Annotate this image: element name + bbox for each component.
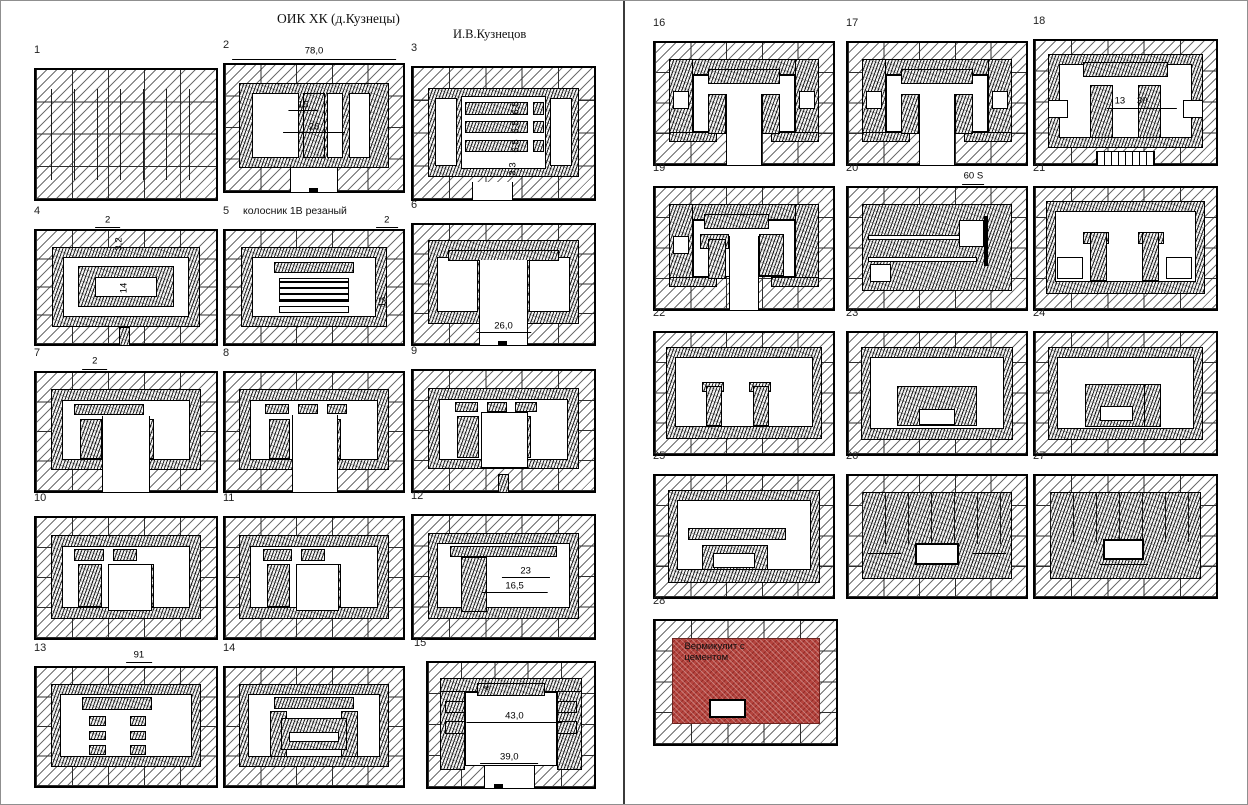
cavity-region [799,91,815,109]
dimension-label: 91 [134,650,145,661]
firebrick-hatch-region [89,731,106,741]
brick-joints [1050,492,1202,542]
dimension-line [502,577,550,578]
cavity-region [1166,257,1192,278]
firebrick-hatch-region [263,549,292,560]
firebrick-hatch-region [1090,85,1112,138]
diagram-18: 181330 [1033,15,1218,166]
firebrick-hatch-region [955,94,973,134]
course-drawing [653,474,835,599]
course-number: 25 [653,450,665,462]
cavity-region [915,543,959,566]
marker-block [973,553,1006,554]
marker-block [868,553,901,554]
dimension-label: 39,0 [500,752,519,763]
cavity-region [252,93,299,158]
cavity-region [919,409,955,425]
course-number: 13 [34,642,46,654]
marker-block [494,784,503,789]
firebrick-hatch-region [274,262,354,274]
course-number: 1 [34,44,40,56]
firebrick-hatch-region [515,402,537,412]
course-drawing: 91 [34,666,218,788]
diagram-15: 15443,039,0 [426,637,596,789]
firebrick-hatch-region [457,416,479,458]
cavity-region [868,257,977,262]
cavity-region [709,699,746,718]
diagram-9: 9 [411,345,596,493]
dimension-label: 43,0 [505,711,524,722]
cavity-region [349,93,371,158]
firebrick-hatch-region [298,404,318,414]
diagram-24: 24 [1033,307,1218,456]
dimension-line [82,369,108,370]
course-number: 5 [223,205,229,217]
dimension-label: 14 [119,282,130,293]
course-drawing: 2316,5 [411,514,596,640]
firebrick-hatch-region [533,102,544,114]
firebrick-hatch-region [762,94,780,134]
diagram-14: 14 [223,642,405,788]
firebrick-hatch-region [130,731,147,741]
firebrick-hatch-region [89,745,106,755]
cavity-region [673,236,689,254]
firebrick-hatch-region [130,745,147,755]
cavity-region [279,306,348,313]
firebrick-hatch-region [901,69,974,84]
cavity-region [713,553,755,568]
dimension-label: 78,0 [305,46,324,57]
course-drawing [223,516,405,640]
diagram-13: 1391 [34,642,218,788]
dimension-line [376,227,398,228]
opening-region [102,416,150,493]
firebrick-hatch-region [1144,384,1161,428]
marker-block [309,188,318,193]
course-drawing [34,516,218,640]
dimension-label: 30 [1137,96,1148,107]
firebrick-hatch-region [1138,85,1160,138]
cavity-region [992,91,1008,109]
dimension-line [232,59,396,60]
diagram-16: 16 [653,17,835,166]
firebrick-hatch-region [78,564,102,606]
dimension-label: 15 [298,99,309,110]
diagram-4: 423,214 [34,205,218,346]
firebrick-hatch-region [753,386,769,426]
brick-joints [51,89,202,179]
course-number: 24 [1033,307,1045,319]
cavity-region [675,357,813,427]
cavity-region [296,564,340,611]
dimension-line [95,227,121,228]
firebrick-hatch-region [130,716,147,726]
course-number: 27 [1033,450,1045,462]
course-drawing [1033,331,1218,456]
firebrick-hatch-region [445,721,465,734]
course-number: 18 [1033,15,1045,27]
firebrick-hatch-region [669,132,716,142]
firebrick-hatch-region [688,528,786,541]
dimension-line [126,662,152,663]
dimension-label: 13 [378,296,389,307]
course-number: 19 [653,162,665,174]
course-drawing: 443,039,0 [426,661,596,789]
course-drawing [846,474,1028,599]
dimension-label: 60 S [964,171,984,182]
diagram-2: 278,01526 [223,39,405,193]
dimension-label: 26,0 [494,321,513,332]
firebrick-hatch-region [461,557,487,612]
firebrick-hatch-region [669,277,716,287]
diagram-5: 5колосник 1В резаный213 [223,205,405,346]
opening-region [292,415,338,493]
cavity-region [1103,539,1144,560]
firebrick-hatch-region [533,121,544,133]
firebrick-hatch-region [265,404,289,414]
firebrick-hatch-region [89,716,106,726]
diagram-28: 28Вермикулит с цементом [653,595,838,746]
dimension-line [467,722,562,723]
course-drawing [653,331,835,456]
firebrick-hatch-region [706,386,722,426]
firebrick-hatch-region [771,132,818,142]
firebrick-hatch-region [455,402,477,412]
course-number: 12 [411,490,423,502]
cavity-region [1057,257,1083,278]
course-drawing [653,186,835,311]
page-title: ОИК ХК (д.Кузнецы) [277,11,400,27]
firebrick-hatch-region [1142,232,1159,281]
course-number: 21 [1033,162,1045,174]
firebrick-hatch-region [557,701,577,714]
course-drawing [1033,186,1218,311]
firebrick-hatch-region [487,402,507,412]
firebrick-hatch-region [708,239,726,279]
firebrick-hatch-region [708,69,781,84]
course-number: 7 [34,347,40,359]
course-number: 20 [846,162,858,174]
dimension-label: 13 [1115,96,1126,107]
firebrick-hatch-region [74,549,103,560]
firebrick-hatch-region [1083,62,1168,77]
diagram-21: 21 [1033,162,1218,311]
course-drawing: Вермикулит с цементом [653,619,838,746]
firebrick-hatch-region [862,132,909,142]
course-drawing [34,68,218,201]
course-drawing: 78,01526 [223,63,405,193]
dimension-label: 6,5 [511,101,522,114]
brick-joints [862,492,1011,545]
course-number: 28 [653,595,665,607]
firebrick-hatch-region [113,549,137,560]
course-number: 6 [411,199,417,211]
cavity-region [481,412,527,468]
diagram-20: 2060 S [846,162,1028,311]
dimension-label: 3,3 [507,162,518,175]
author-name: И.В.Кузнецов [453,27,526,42]
course-number: 14 [223,642,235,654]
course-drawing: 1330 [1033,39,1218,166]
diagram-3: 36,56,56,53,3 [411,42,596,201]
firebrick-hatch-region [445,701,465,714]
firebrick-hatch-region [274,697,354,709]
course-drawing: 6,56,56,53,3 [411,66,596,201]
course-drawing: 26,0 [411,223,596,346]
dimension-line [1107,108,1177,109]
course-drawing [846,41,1028,166]
cavity-region [1183,100,1203,118]
firebrick-hatch-region [1090,232,1107,281]
course-drawing: 23,214 [34,229,218,346]
firebrick-hatch-region [450,546,557,557]
firebrick-hatch-region [327,404,347,414]
course-number: 17 [846,17,858,29]
diagram-23: 23 [846,307,1028,456]
course-number: 4 [34,205,40,217]
course-drawing: 213 [223,229,405,346]
course-drawing [653,41,835,166]
firebrick-hatch-region [704,214,770,229]
dimension-line [480,763,538,764]
dimension-label: 2 [384,214,389,225]
firebrick-hatch-region [759,234,784,277]
page-divider [623,1,625,804]
course-caption: колосник 1В резаный [243,205,347,217]
diagram-7: 72 [34,347,218,493]
course-number: 22 [653,307,665,319]
dimension-label: 2 [105,214,110,225]
cavity-region [327,93,343,158]
firebrick-hatch-region [267,564,291,606]
course-number: 16 [653,17,665,29]
dimension-label: 16,5 [505,580,524,591]
course-number: 9 [411,345,417,357]
firebrick-hatch-region [269,419,291,459]
opening-region [484,766,535,789]
diagram-25: 25 [653,450,835,599]
cavity-region [437,257,478,311]
firebrick-hatch-region [80,419,102,459]
cavity-region [673,91,689,109]
course-number: 2 [223,39,229,51]
diagram-1: 1 [34,44,218,201]
opening-region [729,236,758,311]
dimension-label: 26 [309,121,320,132]
firebrick-hatch-region [708,94,726,134]
diagram-12: 122316,5 [411,490,596,640]
grate-region [279,278,348,301]
diagram-27: 27 [1033,450,1218,599]
dimension-line [962,184,984,185]
dimension-label: 23 [520,565,531,576]
firebrick-hatch-region [964,132,1011,142]
dimension-line [481,592,548,593]
cavity-region [435,98,457,166]
firebrick-hatch-region [901,94,919,134]
course-drawing: 2 [34,371,218,493]
marker-block [984,216,988,266]
firebrick-hatch-region [119,327,130,346]
course-drawing [223,371,405,493]
cavity-region [108,564,152,611]
marker-block [1100,564,1148,565]
diagram-10: 10 [34,492,218,640]
diagram-6: 626,0 [411,199,596,346]
course-number: 8 [223,347,229,359]
diagram-22: 22 [653,307,835,456]
cavity-region [866,91,882,109]
course-number: 10 [34,492,46,504]
opening-region [919,94,955,167]
diagram-17: 17 [846,17,1028,166]
course-drawing [1033,474,1218,599]
diagram-11: 11 [223,492,405,640]
firebrick-hatch-region [74,404,144,415]
course-drawing: 60 S [846,186,1028,311]
firebrick-hatch-region [771,277,818,287]
course-number: 11 [223,492,234,504]
course-number: 15 [414,637,426,649]
diagram-26: 26 [846,450,1028,599]
cavity-region [550,98,572,166]
opening-region [726,94,762,167]
dimension-label: 6,5 [511,120,522,133]
diagram-8: 8 [223,347,405,493]
course-number: 26 [846,450,858,462]
cavity-region [289,732,340,742]
dimension-line [476,332,532,333]
cavity-region [529,257,570,311]
cavity-region [1100,406,1133,421]
cavity-region [959,220,984,248]
diagram-19: 19 [653,162,835,311]
dimension-label: 6,5 [511,139,522,152]
course-drawing [223,666,405,788]
firebrick-hatch-region [301,549,325,560]
firebrick-hatch-region [533,140,544,152]
dimension-label: 3,2 [113,238,124,251]
course-drawing [846,331,1028,456]
dimension-label: 2 [92,356,97,367]
course-number: 3 [411,42,417,54]
cavity-region [1048,100,1068,118]
firebrick-hatch-region [82,697,152,710]
drawing-canvas: ОИК ХК (д.Кузнецы) И.В.Кузнецов 1278,015… [0,0,1248,805]
cavity-region [870,264,892,283]
firebrick-hatch-region [795,204,819,288]
course-drawing [411,369,596,493]
course-number: 23 [846,307,858,319]
material-label: Вермикулит с цементом [684,641,786,665]
dimension-label: 4 [482,685,493,690]
